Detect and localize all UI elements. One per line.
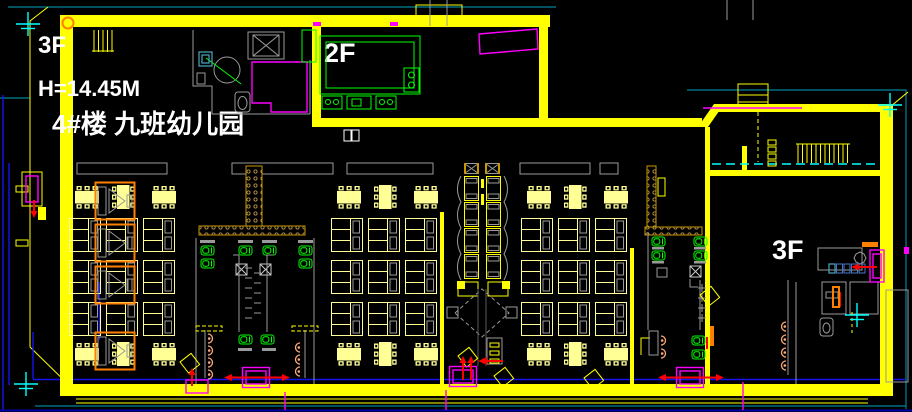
toilet-icon — [299, 246, 312, 255]
site-boundary-lines — [0, 7, 912, 411]
crosshair-icon — [845, 303, 869, 327]
piano-icon — [96, 267, 135, 304]
washbasin-icon — [261, 335, 274, 344]
stair-treads — [796, 144, 850, 163]
entry-arrow-icon — [851, 264, 859, 271]
stair-ticks — [92, 30, 114, 52]
coat-hook-icon — [782, 335, 787, 344]
wall-marker — [658, 178, 665, 196]
toilet-icon — [263, 246, 276, 255]
step-arrows — [698, 284, 706, 322]
toilet-icon — [299, 259, 312, 268]
coat-hook-icon — [782, 322, 787, 331]
toilet-icon — [239, 246, 252, 255]
central-staircase — [447, 163, 517, 387]
plant-icon — [854, 252, 866, 264]
fence-gate-mark — [16, 240, 28, 246]
room-outline-magenta — [252, 62, 307, 112]
toilet-icon — [652, 237, 665, 246]
wall-top — [60, 15, 550, 27]
side-gate — [22, 172, 46, 220]
urinal-icon — [197, 73, 205, 84]
floor-label-3f-right: 3F — [772, 235, 804, 265]
toilet-suite-top-left — [193, 30, 316, 114]
coat-hook-icon — [296, 367, 301, 376]
stair-rail — [768, 140, 776, 166]
kitchen-cluster — [818, 248, 878, 336]
coat-hook-icon — [208, 370, 213, 379]
mat-icon — [458, 347, 478, 367]
floor-drain-icon — [236, 264, 247, 275]
piano-icon — [96, 225, 135, 262]
window-symbol — [344, 130, 359, 141]
coat-hook-icon — [208, 346, 213, 355]
coat-hook-icon — [661, 336, 666, 345]
coat-hook-icon — [296, 343, 301, 352]
column-icon — [464, 163, 479, 174]
washbasin-icon — [692, 350, 705, 359]
door-leaf-icon — [862, 242, 878, 247]
floor-label-3f: 3F — [38, 32, 66, 59]
entry-arrow-icon — [478, 357, 487, 365]
coat-hook-icon — [208, 358, 213, 367]
toilet-icon — [201, 259, 214, 268]
toilet-icon — [652, 251, 665, 260]
corridor-rails — [233, 255, 273, 332]
floor-drain-icon — [690, 266, 701, 277]
main-entrance-door — [450, 356, 477, 387]
wall-corridor — [312, 118, 702, 127]
cad-viewport[interactable]: 3F H=14.45M 4#楼 九班幼儿园 2F 3F — [0, 0, 912, 412]
coat-hook-icon — [208, 334, 213, 343]
washbasin-icon — [692, 336, 705, 345]
crosshair-icon — [14, 372, 38, 396]
survey-crosshairs — [14, 12, 902, 396]
counter-seats — [829, 264, 865, 273]
floor-plan-drawing: 3F H=14.45M 4#楼 九班幼儿园 2F 3F — [0, 0, 912, 412]
round-table-icon — [214, 57, 240, 83]
door-swing-line — [206, 58, 241, 84]
toilet-icon — [201, 246, 214, 255]
coat-hook-icon — [296, 355, 301, 364]
coat-hook-icon — [782, 361, 787, 370]
classroom-left — [70, 185, 177, 366]
sink-icon — [199, 52, 212, 66]
bathroom-left — [196, 238, 318, 384]
canopy-outline — [479, 29, 538, 54]
entry-arrow-icon — [31, 211, 38, 218]
bathroom-right — [641, 232, 714, 359]
coat-hook-icon — [782, 348, 787, 357]
coat-hook-icon — [661, 349, 666, 358]
mat-icon — [180, 353, 200, 373]
column-icon — [485, 163, 500, 174]
wall-left — [60, 15, 73, 396]
door-leaf-icon — [710, 326, 714, 346]
floor-drain-icon — [260, 264, 271, 275]
piano-row — [96, 183, 135, 370]
washbasin-icon — [239, 335, 252, 344]
classroom-right — [522, 185, 629, 366]
classroom-middle — [332, 185, 439, 366]
height-label: H=14.45M — [38, 76, 140, 101]
